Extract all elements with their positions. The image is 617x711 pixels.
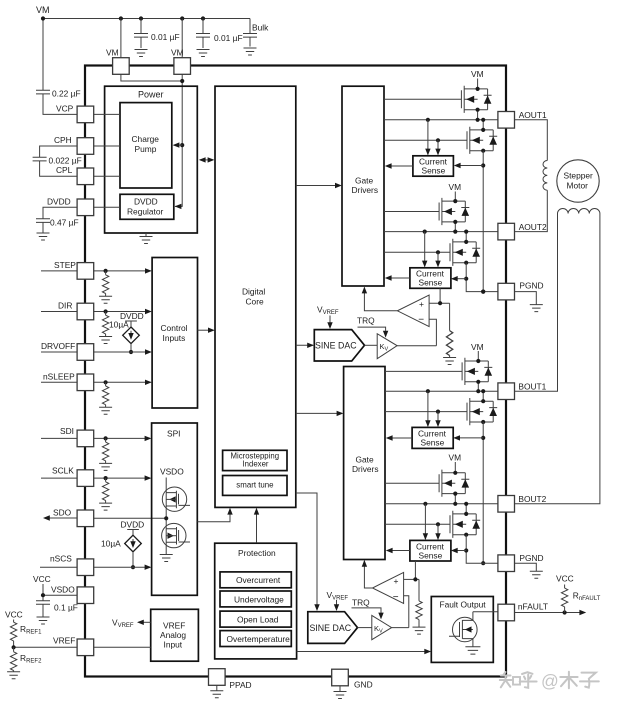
svg-text:@: @ (541, 671, 559, 691)
svg-text:Overtemperature: Overtemperature (227, 634, 291, 644)
svg-text:−: − (418, 315, 424, 326)
svg-text:Control: Control (161, 323, 188, 333)
svg-text:Indexer: Indexer (243, 460, 269, 469)
svg-text:0.01 µF: 0.01 µF (151, 32, 180, 42)
svg-text:PGND: PGND (519, 553, 543, 563)
svg-text:RnFAULT: RnFAULT (573, 591, 601, 603)
svg-text:0.022 µF: 0.022 µF (49, 156, 82, 166)
svg-text:Undervoltage: Undervoltage (234, 595, 284, 605)
svg-text:Stepper: Stepper (564, 171, 594, 181)
svg-text:SINE DAC: SINE DAC (310, 623, 352, 633)
svg-text:VM: VM (471, 342, 484, 352)
svg-text:VM: VM (449, 182, 462, 192)
svg-text:AOUT2: AOUT2 (519, 222, 547, 232)
svg-text:SPI: SPI (167, 429, 181, 439)
svg-text:PPAD: PPAD (229, 680, 251, 690)
svg-text:Digital: Digital (242, 287, 265, 297)
svg-text:Drivers: Drivers (352, 464, 379, 474)
svg-text:Sense: Sense (421, 437, 445, 447)
svg-text:Pump: Pump (135, 144, 157, 154)
svg-text:0.22 µF: 0.22 µF (52, 89, 81, 99)
svg-text:VVREF: VVREF (327, 590, 349, 602)
svg-text:+: + (394, 576, 399, 586)
svg-text:DRVOFF: DRVOFF (41, 341, 75, 351)
svg-text:TRQ: TRQ (352, 598, 370, 608)
svg-text:DVDD: DVDD (134, 197, 158, 207)
svg-text:Inputs: Inputs (163, 333, 186, 343)
svg-text:VCC: VCC (5, 610, 23, 620)
svg-text:Charge: Charge (132, 134, 160, 144)
svg-text:VCP: VCP (56, 104, 74, 114)
svg-text:VM: VM (449, 453, 462, 463)
svg-text:KV: KV (374, 624, 383, 635)
svg-text:SDI: SDI (60, 426, 74, 436)
svg-text:Analog: Analog (160, 630, 186, 640)
svg-text:KV: KV (380, 342, 389, 353)
svg-text:AOUT1: AOUT1 (519, 110, 547, 120)
svg-text:DVDD: DVDD (47, 197, 71, 207)
svg-text:SCLK: SCLK (52, 465, 74, 475)
svg-text:VSDO: VSDO (160, 467, 184, 477)
svg-text:VVREF: VVREF (112, 618, 134, 630)
svg-text:Sense: Sense (422, 166, 446, 176)
svg-text:VM: VM (171, 48, 184, 58)
svg-text:nSLEEP: nSLEEP (43, 372, 75, 382)
svg-text:Power: Power (138, 90, 164, 100)
svg-text:SDO: SDO (53, 508, 72, 518)
svg-text:Protection: Protection (238, 548, 276, 558)
svg-text:STEP: STEP (54, 260, 76, 270)
svg-text:CPL: CPL (56, 165, 73, 175)
svg-text:BOUT1: BOUT1 (518, 382, 546, 392)
svg-text:0.47 µF: 0.47 µF (50, 218, 79, 228)
svg-text:smart tune: smart tune (236, 481, 274, 490)
svg-text:Drivers: Drivers (352, 185, 379, 195)
svg-text:Gate: Gate (355, 175, 373, 185)
svg-text:Motor: Motor (567, 181, 589, 191)
svg-text:Bulk: Bulk (252, 23, 269, 33)
svg-text:VCC: VCC (556, 574, 574, 584)
svg-text:Regulator: Regulator (127, 207, 164, 217)
svg-text:Open Load: Open Load (237, 615, 279, 625)
svg-text:GND: GND (354, 680, 373, 690)
svg-text:0.1 µF: 0.1 µF (54, 603, 78, 613)
svg-text:nFAULT: nFAULT (518, 602, 548, 612)
svg-text:Fault Output: Fault Output (440, 600, 487, 610)
svg-text:RREF1: RREF1 (20, 624, 42, 636)
svg-text:PGND: PGND (519, 281, 543, 291)
svg-text:VM: VM (106, 48, 119, 58)
svg-text:Core: Core (246, 297, 264, 307)
svg-text:VVREF: VVREF (317, 305, 339, 317)
svg-text:VREF: VREF (53, 636, 75, 646)
svg-text:Gate: Gate (356, 454, 374, 464)
svg-text:Overcurrent: Overcurrent (236, 575, 281, 585)
svg-text:VREF: VREF (163, 621, 185, 631)
svg-text:10µA: 10µA (101, 539, 121, 549)
svg-text:+: + (419, 299, 424, 309)
svg-text:DIR: DIR (58, 301, 72, 311)
svg-text:nSCS: nSCS (50, 554, 72, 564)
svg-text:10µA: 10µA (109, 320, 129, 330)
svg-text:VCC: VCC (33, 574, 51, 584)
svg-text:DVDD: DVDD (121, 520, 145, 530)
svg-text:0.01 µF: 0.01 µF (214, 33, 243, 43)
svg-text:Input: Input (164, 640, 183, 650)
svg-text:TRQ: TRQ (357, 316, 375, 326)
svg-text:Sense: Sense (419, 550, 443, 560)
svg-text:CPH: CPH (54, 135, 72, 145)
svg-text:VSDO: VSDO (51, 585, 75, 595)
svg-text:VM: VM (36, 5, 50, 15)
svg-text:Sense: Sense (419, 278, 443, 288)
svg-text:−: − (393, 592, 399, 603)
svg-text:RREF2: RREF2 (20, 653, 42, 665)
svg-text:BOUT2: BOUT2 (518, 494, 546, 504)
svg-text:SINE DAC: SINE DAC (315, 340, 357, 350)
svg-text:VM: VM (471, 69, 484, 79)
